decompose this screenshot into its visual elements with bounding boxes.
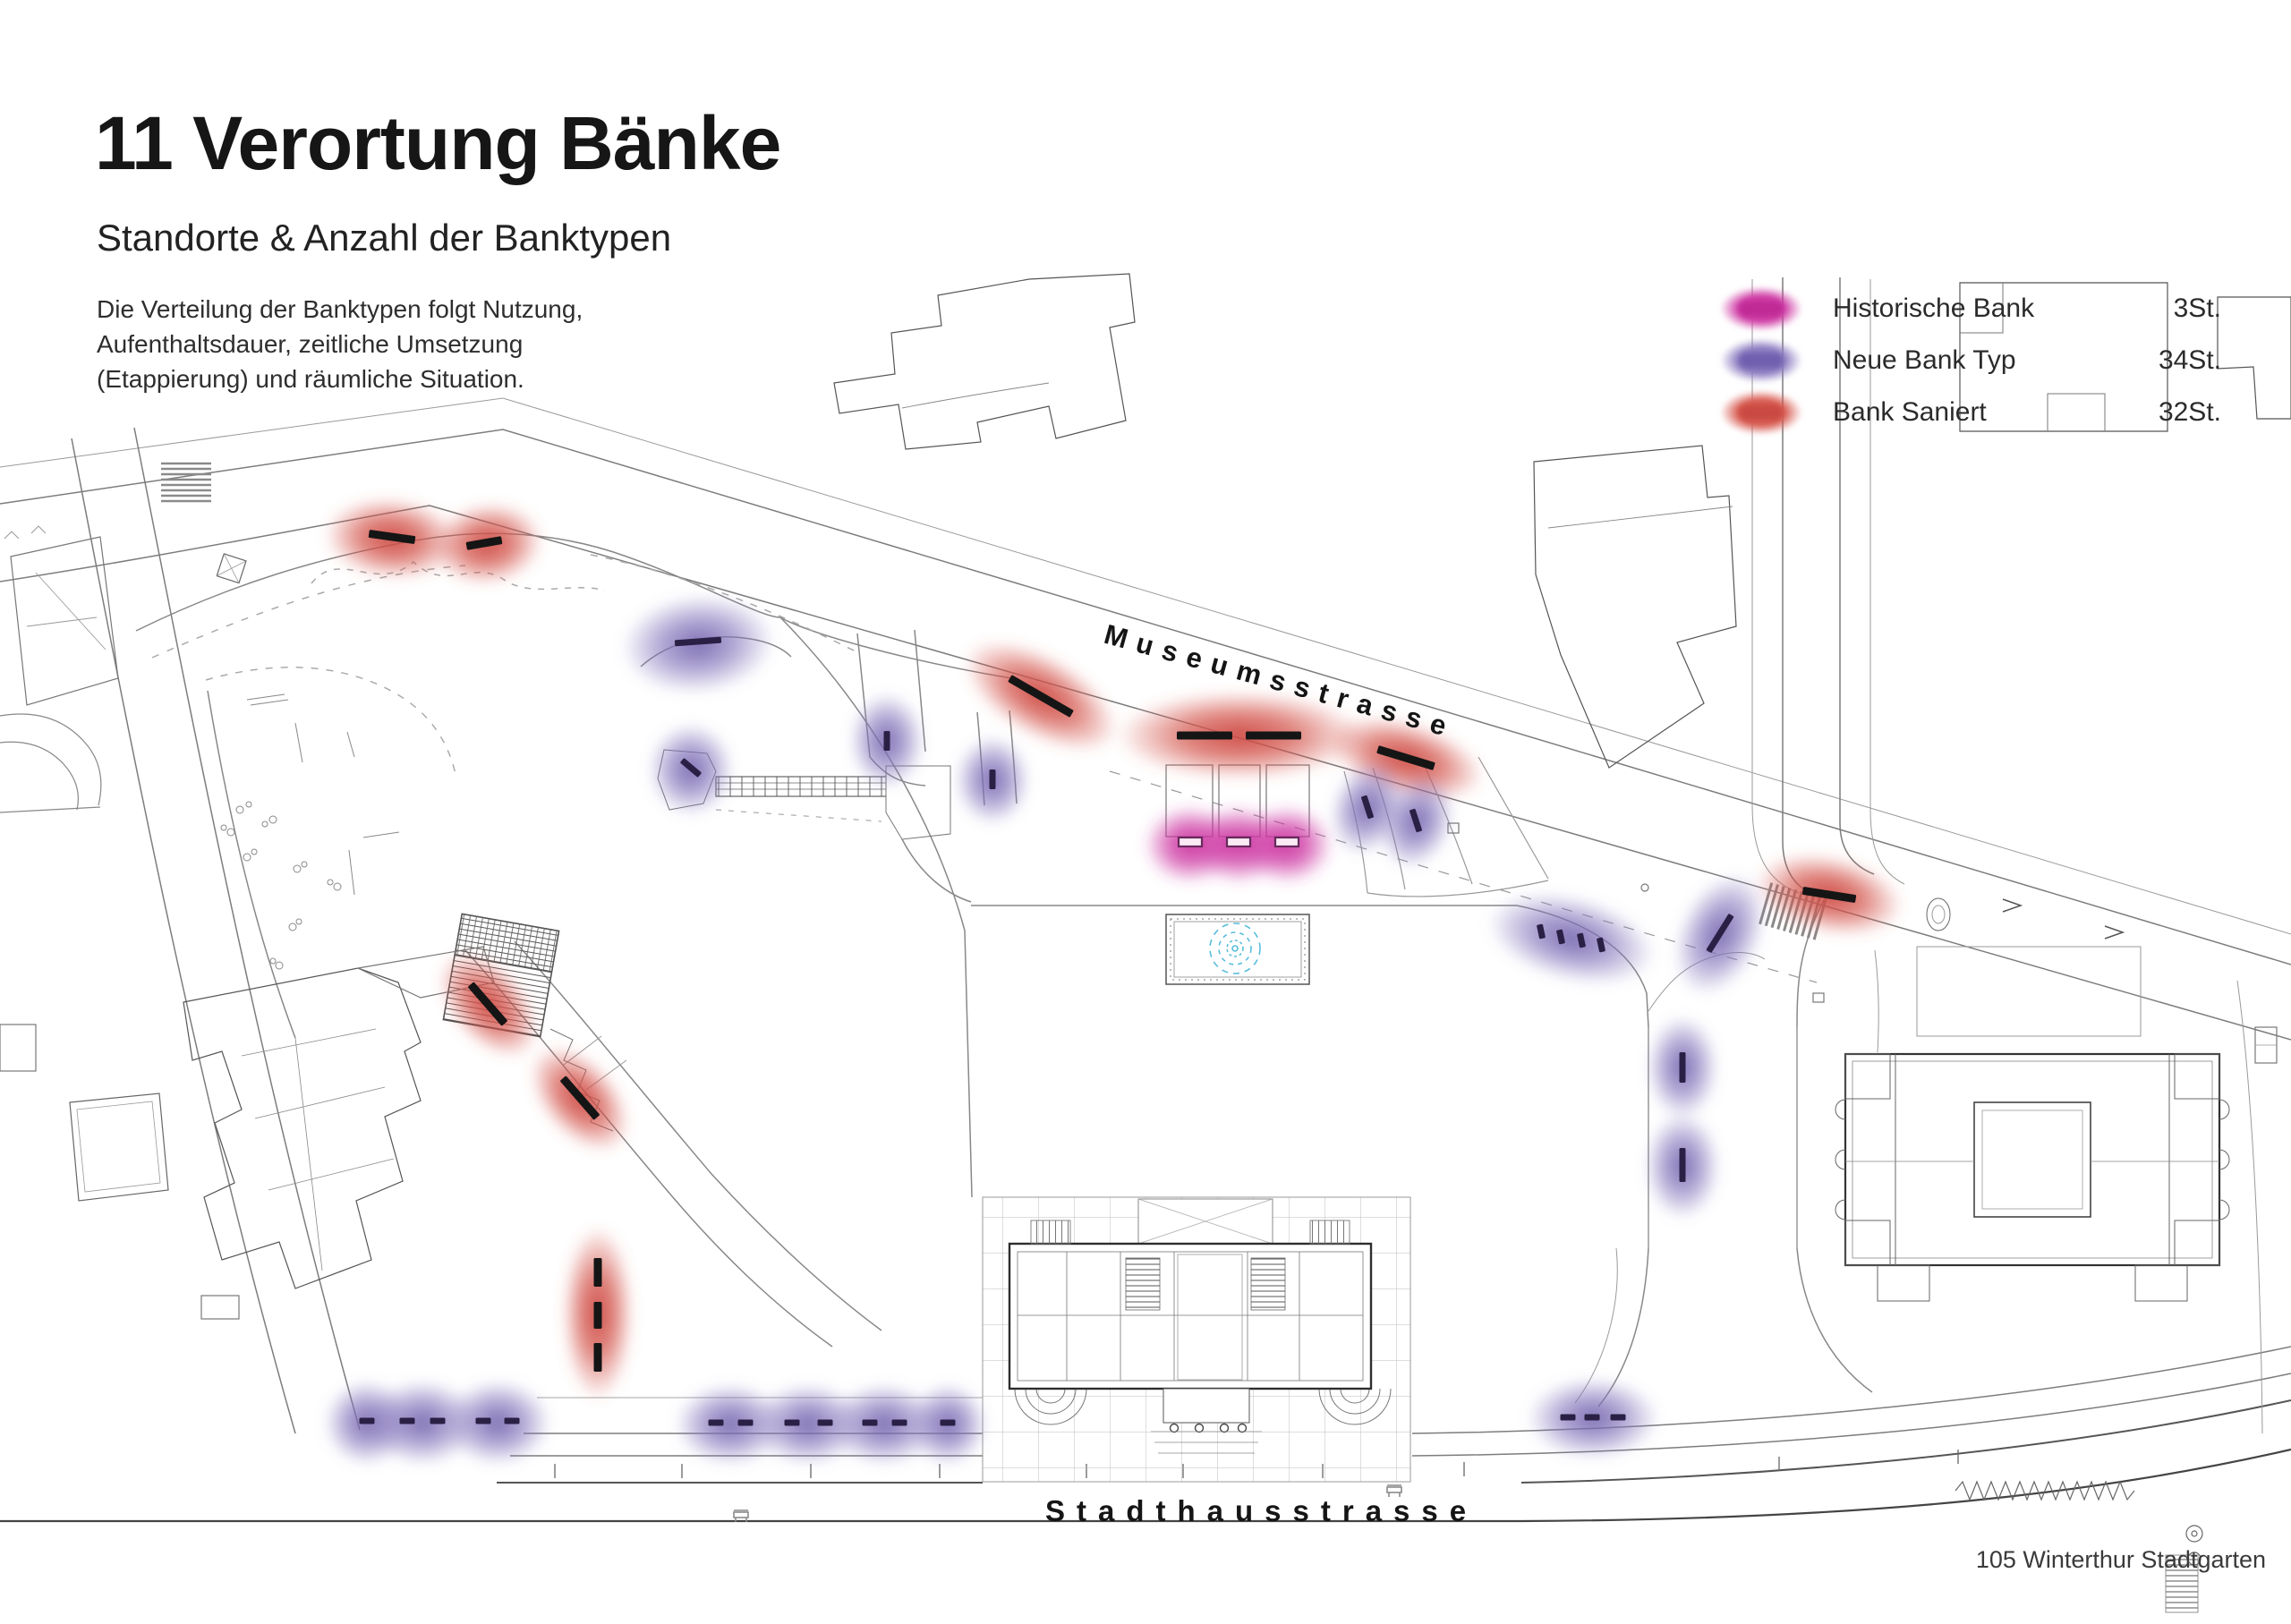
bench-glow-neu	[1478, 876, 1665, 1001]
bench-mark-neu	[941, 1420, 956, 1426]
bench-mark-neu	[1680, 1148, 1686, 1182]
bench-glow-neu	[444, 1380, 551, 1466]
page-description: Die Verteilung der Banktypen folgt Nutzu…	[97, 292, 583, 396]
bench-mark-saniert	[1177, 732, 1232, 740]
page-subtitle: Standorte & Anzahl der Banktypen	[97, 217, 671, 259]
bench-mark-neu	[1585, 1415, 1600, 1421]
bench-mark-historisch	[1227, 838, 1250, 846]
bench-mark-neu	[476, 1418, 491, 1424]
bench-mark-historisch	[1179, 838, 1202, 846]
fountain-icon	[1210, 923, 1260, 974]
page-title: 11 Verortung Bänke	[95, 100, 780, 187]
bench-mark-neu	[505, 1418, 520, 1424]
bench-mark-neu	[1611, 1415, 1626, 1421]
bench-mark-neu	[400, 1418, 415, 1424]
bench-mark-neu	[785, 1420, 800, 1426]
bench-mark-neu	[892, 1420, 907, 1426]
bench-mark-neu	[884, 731, 890, 751]
stadthaus-building	[983, 1197, 1410, 1482]
bench-mark-neu	[360, 1418, 375, 1424]
legend: Historische Bank3St.Neue Bank Typ34St.Ba…	[1720, 285, 2221, 437]
legend-item-historisch: Historische Bank3St.	[1720, 285, 2221, 333]
bench-mark-saniert	[1246, 732, 1301, 740]
legend-count: 32St.	[2123, 397, 2221, 428]
legend-swatch-neu	[1720, 338, 1802, 383]
legend-swatch-historisch	[1720, 286, 1802, 331]
legend-swatch-saniert	[1720, 390, 1802, 435]
bench-mark-saniert	[594, 1302, 602, 1329]
bench-mark-neu	[709, 1420, 724, 1426]
street-label-stadthausstrasse: Stadthausstrasse	[1045, 1494, 1478, 1527]
legend-label: Bank Saniert	[1833, 397, 2123, 428]
bench-mark-saniert	[594, 1258, 602, 1287]
legend-label: Neue Bank Typ	[1833, 345, 2123, 376]
pond	[1166, 914, 1309, 984]
legend-item-saniert: Bank Saniert32St.	[1720, 388, 2221, 437]
bench-mark-neu	[990, 769, 996, 789]
bench-mark-neu	[430, 1418, 446, 1424]
bench-mark-historisch	[1275, 838, 1299, 846]
legend-label: Historische Bank	[1833, 293, 2123, 324]
bench-mark-neu	[818, 1420, 833, 1426]
bench-mark-saniert	[594, 1343, 602, 1372]
bench-mark-neu	[1680, 1052, 1686, 1083]
bench-mark-neu	[1561, 1415, 1576, 1421]
legend-count: 34St.	[2123, 345, 2221, 376]
museum-building	[1835, 947, 2229, 1301]
bench-mark-neu	[863, 1420, 878, 1426]
footer-caption: 105 Winterthur Stadtgarten	[1976, 1546, 2266, 1574]
legend-count: 3St.	[2123, 293, 2221, 324]
bench-mark-neu	[738, 1420, 754, 1426]
legend-item-neu: Neue Bank Typ34St.	[1720, 336, 2221, 385]
